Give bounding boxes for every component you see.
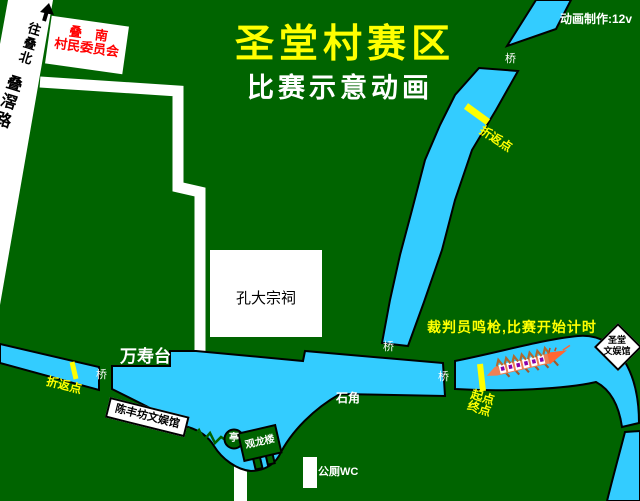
canal-north-lower xyxy=(382,68,518,346)
start-finish-line xyxy=(480,364,483,391)
page-title: 圣堂村赛区 xyxy=(180,24,510,67)
animation-credit: 动画制作:12v xyxy=(560,13,632,26)
page-subtitle: 比赛示意动画 xyxy=(190,74,490,104)
race-announcement: 裁判员鸣枪,比赛开始计时 xyxy=(427,320,597,335)
race-map: 动画制作:12v 圣堂村赛区 比赛示意动画 往叠北 叠滘路 叠 南 村民委员会 … xyxy=(0,0,640,501)
toilet-shape xyxy=(303,457,317,488)
bottom-road xyxy=(234,466,247,501)
bridge-label-east: 桥 xyxy=(438,371,449,383)
side-road xyxy=(40,82,200,351)
toilet-label: 公厕WC xyxy=(318,466,358,478)
shijiao-label: 石角 xyxy=(336,392,360,405)
wanshoutai-label: 万寿台 xyxy=(120,348,171,367)
shengtang-hall-line1: 圣堂 xyxy=(596,335,638,346)
canal-southeast xyxy=(607,431,640,501)
pavilion-label: 亭 xyxy=(225,433,243,444)
bridge-label-north: 桥 xyxy=(505,53,516,65)
shengtang-hall-label: 圣堂 文娱馆 xyxy=(596,335,638,356)
bridge-label-west: 桥 xyxy=(96,369,107,381)
ancestral-hall-label: 孔大宗祠 xyxy=(210,291,322,308)
bridge-label-middle: 桥 xyxy=(383,341,394,353)
shengtang-hall-line2: 文娱馆 xyxy=(596,346,638,357)
